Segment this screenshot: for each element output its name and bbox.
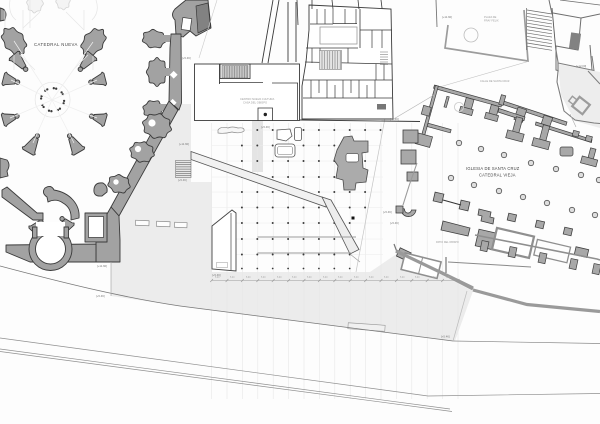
svg-text:PATIO DEL OBISPO: PATIO DEL OBISPO bbox=[436, 241, 459, 244]
svg-text:[+11.60]: [+11.60] bbox=[179, 142, 189, 146]
svg-text:5.00: 5.00 bbox=[415, 277, 420, 279]
svg-text:[+5.46]: [+5.46] bbox=[178, 178, 187, 182]
svg-text:[+11.60]: [+11.60] bbox=[97, 264, 107, 268]
svg-text:5.00: 5.00 bbox=[338, 277, 343, 279]
svg-text:5.00: 5.00 bbox=[230, 277, 235, 279]
svg-text:[+5.46]: [+5.46] bbox=[383, 210, 392, 214]
svg-text:[+5.46]: [+5.46] bbox=[261, 125, 270, 129]
svg-text:5.00: 5.00 bbox=[400, 277, 405, 279]
svg-text:[+12.00]: [+12.00] bbox=[576, 64, 586, 68]
svg-text:5.00: 5.00 bbox=[292, 277, 297, 279]
svg-text:5.00: 5.00 bbox=[446, 277, 451, 279]
svg-text:5.00: 5.00 bbox=[277, 277, 282, 279]
svg-text:[+5.46]: [+5.46] bbox=[182, 56, 191, 60]
svg-text:5.00: 5.00 bbox=[323, 277, 328, 279]
svg-text:5.00: 5.00 bbox=[369, 277, 374, 279]
svg-text:[+5.46]: [+5.46] bbox=[441, 335, 450, 339]
svg-text:IGLESIA DE SANTA CRUZ: IGLESIA DE SANTA CRUZ bbox=[466, 166, 520, 171]
svg-text:[+5.46]: [+5.46] bbox=[390, 117, 399, 121]
svg-text:5.00: 5.00 bbox=[431, 277, 436, 279]
svg-text:[+11.60]: [+11.60] bbox=[442, 15, 452, 19]
svg-text:[+5.46]: [+5.46] bbox=[96, 294, 105, 298]
svg-text:5.00: 5.00 bbox=[215, 277, 220, 279]
svg-text:CATEDRAL NUEVA: CATEDRAL NUEVA bbox=[34, 42, 78, 47]
svg-text:5.00: 5.00 bbox=[246, 277, 251, 279]
svg-text:[+5.46]: [+5.46] bbox=[390, 221, 399, 225]
svg-text:5.00: 5.00 bbox=[384, 277, 389, 279]
svg-text:CALLE DE SANTA CRUZ: CALLE DE SANTA CRUZ bbox=[480, 79, 510, 83]
svg-text:CATEDRAL VIEJA: CATEDRAL VIEJA bbox=[479, 173, 516, 178]
svg-text:5.00: 5.00 bbox=[261, 277, 266, 279]
svg-text:5.00: 5.00 bbox=[354, 277, 359, 279]
svg-text:PLAZA DE: PLAZA DE bbox=[484, 15, 497, 19]
svg-text:CASA DEL OBISPO: CASA DEL OBISPO bbox=[243, 101, 267, 105]
svg-text:CENTRO NUEVA CULTURA: CENTRO NUEVA CULTURA bbox=[240, 97, 274, 101]
svg-text:5.00: 5.00 bbox=[307, 277, 312, 279]
svg-text:FRAY FELIX: FRAY FELIX bbox=[484, 19, 499, 23]
